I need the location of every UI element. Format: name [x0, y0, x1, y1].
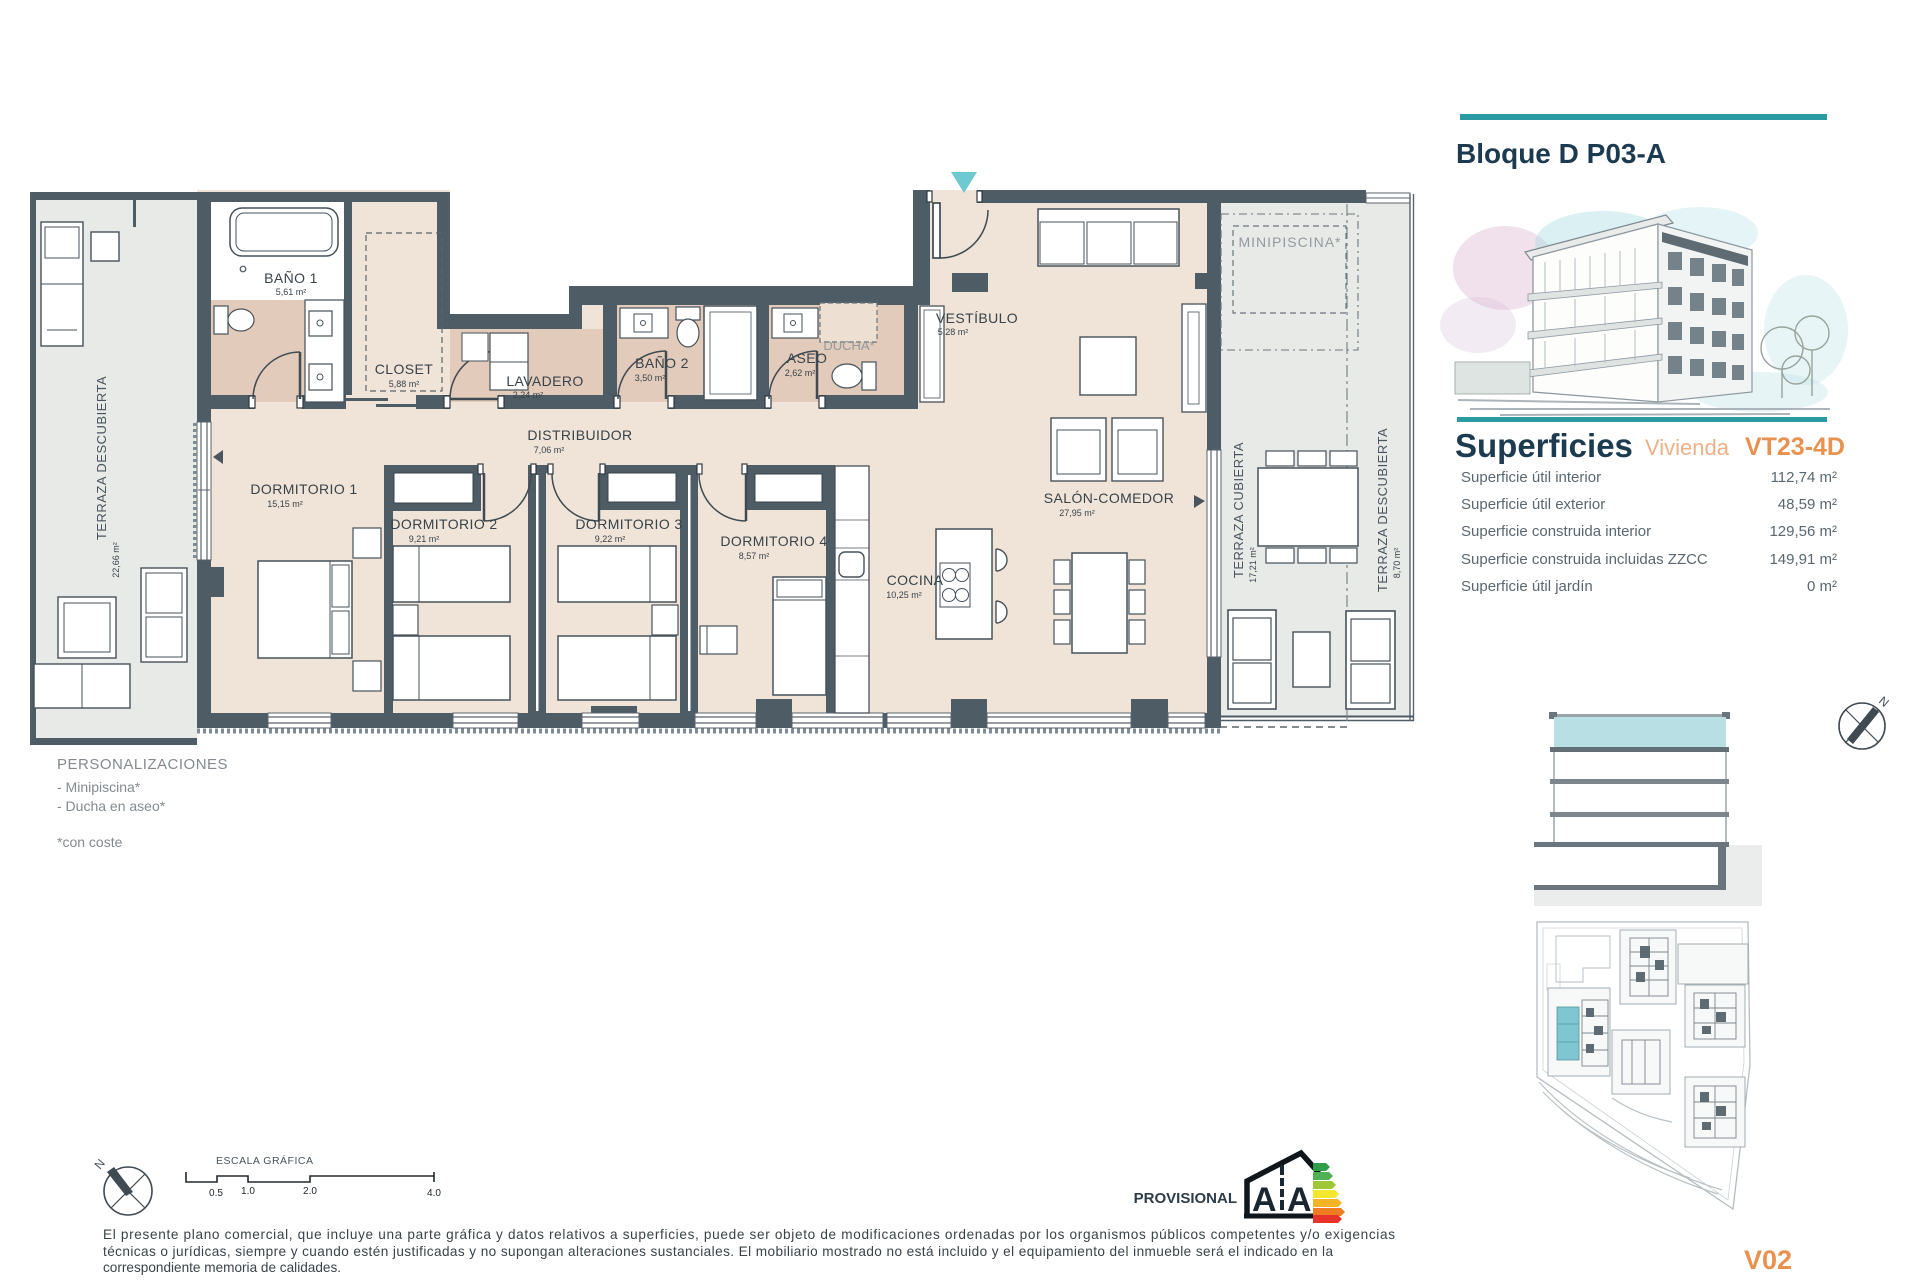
svg-text:Superficies: Superficies [1455, 427, 1633, 464]
svg-text:5,28 m²: 5,28 m² [938, 327, 969, 337]
svg-text:VT23-4D: VT23-4D [1745, 433, 1845, 461]
svg-text:7,06 m²: 7,06 m² [534, 445, 565, 455]
svg-text:0 m²: 0 m² [1807, 578, 1837, 595]
svg-text:Superficie construida interior: Superficie construida interior [1461, 523, 1651, 540]
svg-text:SALÓN-COMEDOR: SALÓN-COMEDOR [1044, 490, 1174, 506]
svg-text:DORMITORIO 2: DORMITORIO 2 [390, 516, 497, 532]
svg-text:TERRAZA DESCUBIERTA: TERRAZA DESCUBIERTA [94, 376, 109, 540]
svg-text:4.0: 4.0 [427, 1188, 441, 1199]
svg-text:CLOSET: CLOSET [375, 361, 433, 377]
svg-text:112,74 m²: 112,74 m² [1771, 469, 1837, 486]
svg-text:- Ducha en aseo*: - Ducha en aseo* [57, 798, 166, 814]
svg-text:N: N [1876, 694, 1892, 710]
svg-text:Superficie útil interior: Superficie útil interior [1461, 469, 1601, 486]
svg-text:*con coste: *con coste [57, 834, 123, 850]
svg-text:5,61 m²: 5,61 m² [276, 287, 307, 297]
svg-text:DORMITORIO 3: DORMITORIO 3 [575, 516, 682, 532]
svg-text:TERRAZA DESCUBIERTA: TERRAZA DESCUBIERTA [1375, 428, 1390, 592]
svg-text:129,56 m²: 129,56 m² [1769, 523, 1837, 540]
svg-text:V02: V02 [1744, 1245, 1792, 1275]
svg-text:N: N [92, 1156, 108, 1172]
svg-text:27,95 m²: 27,95 m² [1059, 508, 1095, 518]
svg-text:PROVISIONAL: PROVISIONAL [1134, 1190, 1237, 1207]
svg-text:9,21 m²: 9,21 m² [409, 534, 440, 544]
svg-text:Superficie construida incluida: Superficie construida incluidas ZZCC [1461, 551, 1708, 568]
svg-text:Bloque D P03-A: Bloque D P03-A [1456, 138, 1666, 169]
svg-text:3,50 m²: 3,50 m² [635, 373, 666, 383]
svg-text:0.5: 0.5 [209, 1188, 223, 1199]
svg-text:8,70 m²: 8,70 m² [1392, 548, 1402, 579]
svg-text:10,25 m²: 10,25 m² [886, 590, 922, 600]
svg-text:A: A [1252, 1181, 1277, 1219]
svg-text:DORMITORIO 4: DORMITORIO 4 [720, 533, 827, 549]
svg-text:MINIPISCINA*: MINIPISCINA* [1238, 234, 1341, 250]
svg-text:22,66 m²: 22,66 m² [111, 542, 121, 578]
svg-text:correspondiente memoria de cal: correspondiente memoria de calidades. [103, 1260, 341, 1275]
svg-text:COCINA: COCINA [887, 572, 944, 588]
svg-text:8,57 m²: 8,57 m² [739, 551, 770, 561]
svg-text:5,88 m²: 5,88 m² [389, 379, 420, 389]
svg-text:DORMITORIO 1: DORMITORIO 1 [250, 481, 357, 497]
svg-text:A: A [1287, 1181, 1312, 1219]
svg-text:2,62 m²: 2,62 m² [785, 368, 816, 378]
svg-text:149,91 m²: 149,91 m² [1769, 551, 1837, 568]
svg-text:técnicas o jurídicas, siempre: técnicas o jurídicas, siempre y cuando e… [103, 1244, 1333, 1259]
svg-text:ASEO: ASEO [787, 350, 828, 366]
svg-text:TERRAZA CUBIERTA: TERRAZA CUBIERTA [1231, 442, 1246, 578]
svg-text:2,24 m²: 2,24 m² [513, 390, 544, 400]
svg-text:DUCHA*: DUCHA* [823, 338, 874, 353]
svg-text:48,59 m²: 48,59 m² [1778, 496, 1837, 513]
svg-text:PERSONALIZACIONES: PERSONALIZACIONES [57, 756, 228, 773]
svg-text:Superficie útil exterior: Superficie útil exterior [1461, 496, 1605, 513]
svg-text:15,15 m²: 15,15 m² [267, 499, 303, 509]
svg-text:ESCALA GRÁFICA: ESCALA GRÁFICA [216, 1154, 313, 1167]
svg-text:El presente plano comercial, q: El presente plano comercial, que incluye… [103, 1227, 1395, 1242]
svg-text:BAÑO 1: BAÑO 1 [264, 270, 318, 286]
svg-text:- Minipiscina*: - Minipiscina* [57, 779, 141, 795]
svg-text:BAÑO 2: BAÑO 2 [635, 355, 689, 371]
svg-text:2.0: 2.0 [303, 1186, 317, 1197]
svg-text:DISTRIBUIDOR: DISTRIBUIDOR [527, 427, 632, 443]
svg-text:VESTÍBULO: VESTÍBULO [936, 310, 1018, 326]
svg-text:Vivienda: Vivienda [1645, 435, 1730, 460]
svg-text:Superficie útil jardín: Superficie útil jardín [1461, 578, 1593, 595]
svg-text:LAVADERO: LAVADERO [506, 373, 583, 389]
svg-text:17,21 m²: 17,21 m² [1248, 547, 1258, 583]
svg-text:1.0: 1.0 [241, 1186, 255, 1197]
svg-text:9,22 m²: 9,22 m² [595, 534, 626, 544]
